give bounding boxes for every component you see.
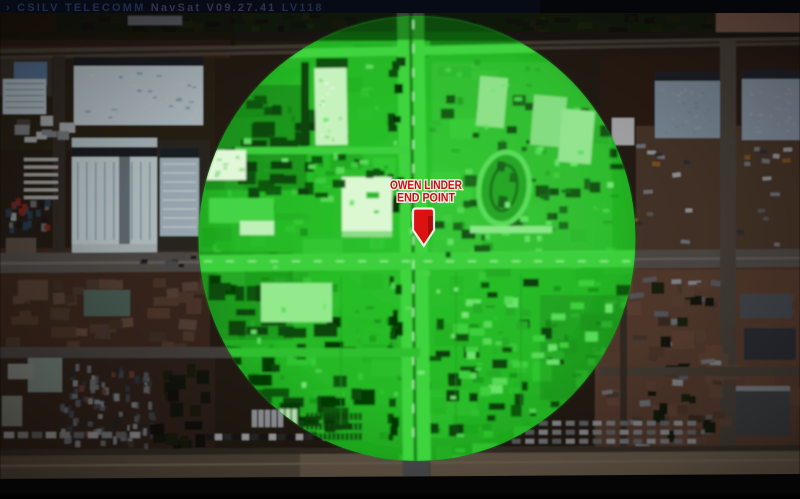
svg-text:END POINT: END POINT <box>397 193 455 205</box>
svg-text:OWEN LINDER: OWEN LINDER <box>390 180 463 192</box>
svg-text:› CSILV TELECOMM NavSat V09.2: › CSILV TELECOMM NavSat V09.27.41 LV118 <box>6 2 324 14</box>
